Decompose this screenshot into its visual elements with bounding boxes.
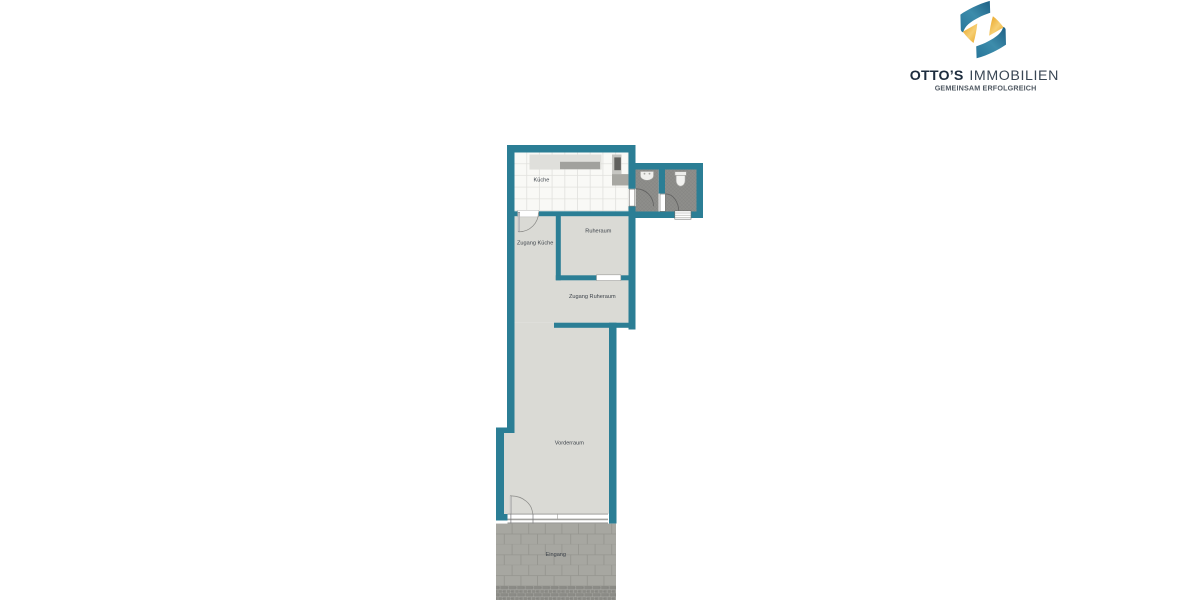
svg-text:Ruheraum: Ruheraum <box>585 228 611 234</box>
svg-text:Küche: Küche <box>534 178 550 184</box>
svg-text:Zugang Ruheraum: Zugang Ruheraum <box>569 294 616 300</box>
svg-text:Zugang Küche: Zugang Küche <box>517 240 553 246</box>
svg-text:OTTO’S: OTTO’S <box>910 68 964 84</box>
svg-text:Eingang: Eingang <box>546 552 567 558</box>
svg-text:Vorderraum: Vorderraum <box>555 440 585 446</box>
svg-text:IMMOBILIEN: IMMOBILIEN <box>969 68 1059 84</box>
svg-text:GEMEINSAM ERFOLGREICH: GEMEINSAM ERFOLGREICH <box>935 83 1037 92</box>
